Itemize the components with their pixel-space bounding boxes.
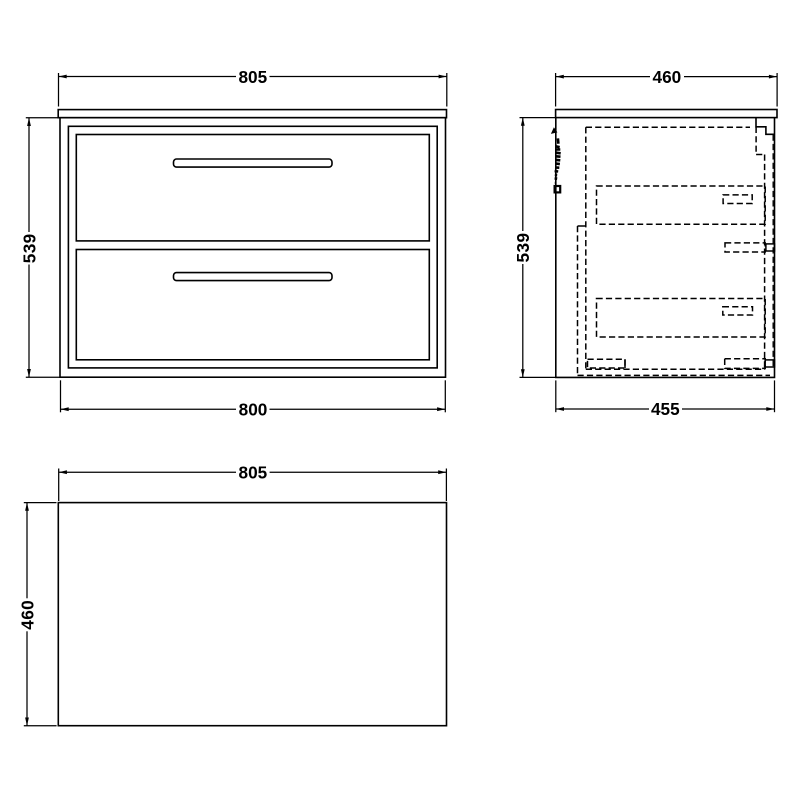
svg-text:805: 805 [239, 462, 268, 482]
svg-text:805: 805 [238, 67, 267, 87]
svg-text:539: 539 [513, 233, 533, 263]
svg-text:539: 539 [19, 233, 39, 263]
svg-text:455: 455 [651, 399, 680, 419]
svg-text:460: 460 [17, 600, 37, 630]
svg-text:460: 460 [653, 67, 682, 87]
svg-text:800: 800 [239, 399, 268, 419]
